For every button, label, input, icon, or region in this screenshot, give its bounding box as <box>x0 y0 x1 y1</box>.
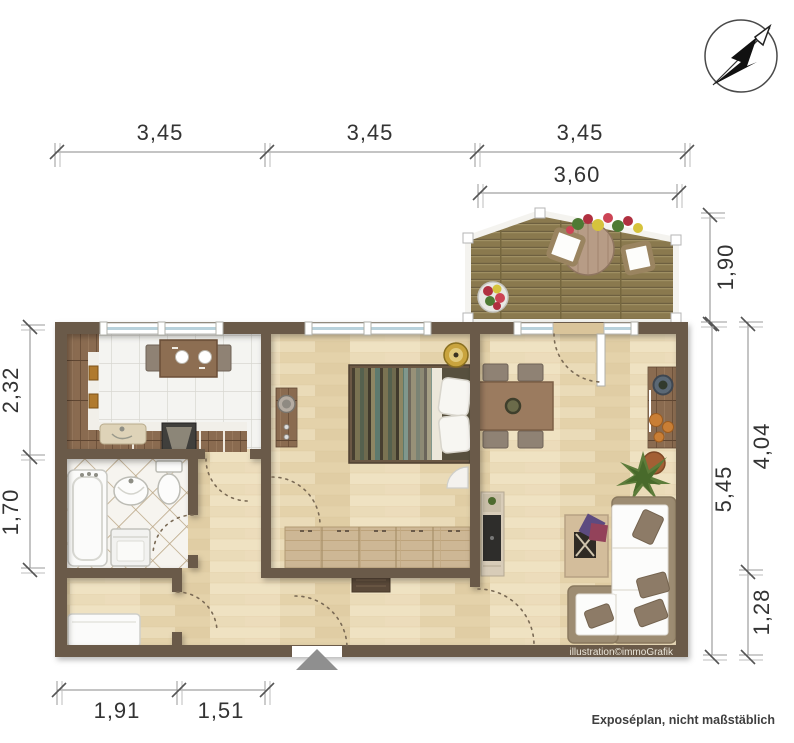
coffee-table <box>565 513 608 577</box>
dim-right-total: 5,45 <box>711 466 736 513</box>
bedroom-wardrobe <box>285 527 470 568</box>
dim-left-kitchen: 2,32 <box>0 367 23 414</box>
bed <box>349 365 472 463</box>
plate <box>199 351 212 364</box>
dining-chair <box>518 364 543 381</box>
floor-plan-drawing: illustration©immoGrafik 3,45 3,45 3,45 3… <box>0 0 794 743</box>
kitchen-countertop-left <box>88 352 99 430</box>
flower-pot <box>478 282 508 312</box>
fruit <box>650 414 663 427</box>
wall-bath-east <box>188 459 198 515</box>
wall-bath-south <box>67 568 172 578</box>
dim-bottom-left: 1,91 <box>94 698 141 723</box>
bathtub <box>68 470 107 566</box>
shoe-bench <box>352 576 390 592</box>
kitchen-shelf-item <box>89 366 98 380</box>
dim-bottom-right: 1,51 <box>198 698 245 723</box>
dim-right-upper: 4,04 <box>749 423 774 470</box>
wall-kitchen-bedroom <box>261 334 271 578</box>
bathroom-sink <box>114 477 148 505</box>
dim-balcony-depth: 1,90 <box>713 244 738 291</box>
storage-cabinet <box>68 614 140 647</box>
balcony-door-threshold <box>553 323 604 334</box>
wall-bedroom-south <box>261 568 470 578</box>
tv-board <box>481 492 504 576</box>
wall-storage-stub <box>172 632 182 645</box>
balcony-chair <box>623 243 654 274</box>
plate <box>176 351 189 364</box>
floor-plan-page: illustration©immoGrafik 3,45 3,45 3,45 3… <box>0 0 794 743</box>
wall-dresser-mirror <box>276 388 297 447</box>
dim-top-1: 3,45 <box>137 120 184 145</box>
dim-left-bath: 1,70 <box>0 489 23 536</box>
dim-right-lower: 1,28 <box>749 589 774 636</box>
window-kitchen <box>100 322 223 335</box>
dining-chair <box>518 431 543 448</box>
balcony <box>463 208 681 323</box>
dining-chair <box>483 364 508 381</box>
wall-bedroom-living <box>470 334 480 587</box>
window-living-left <box>514 322 553 335</box>
wall-storage <box>172 568 182 592</box>
balcony-chair <box>548 229 584 265</box>
wall-bath-east-stub <box>188 555 198 568</box>
kitchen-stove <box>162 423 196 452</box>
dim-top-3: 3,45 <box>557 120 604 145</box>
pillow <box>438 377 473 417</box>
wall-kitchen-south <box>67 449 205 459</box>
washing-machine <box>111 529 150 566</box>
window-bedroom <box>305 322 431 335</box>
window-living-right <box>604 322 638 335</box>
dining-chair <box>483 431 508 448</box>
kitchen-table <box>146 340 231 377</box>
ceiling-lamp <box>444 343 468 367</box>
deco-blanket <box>589 523 608 542</box>
pillow <box>438 415 472 454</box>
kitchen-counter-bottom <box>67 430 247 452</box>
fruit <box>654 432 664 442</box>
dim-top-2: 3,45 <box>347 120 394 145</box>
footer-note: Exposéplan, nicht maßstäblich <box>592 713 775 727</box>
sideboard <box>648 367 678 448</box>
fruit <box>663 422 674 433</box>
small-plant <box>488 497 496 505</box>
north-arrow-icon <box>705 20 777 92</box>
kitchen-sink <box>100 424 146 444</box>
wall-stub <box>250 449 261 459</box>
credit-text: illustration©immoGrafik <box>569 647 674 658</box>
balcony-door-leaf <box>597 334 605 386</box>
kitchen-shelf-item <box>89 394 98 408</box>
dim-balcony-width: 3,60 <box>554 162 601 187</box>
toilet <box>156 461 182 504</box>
